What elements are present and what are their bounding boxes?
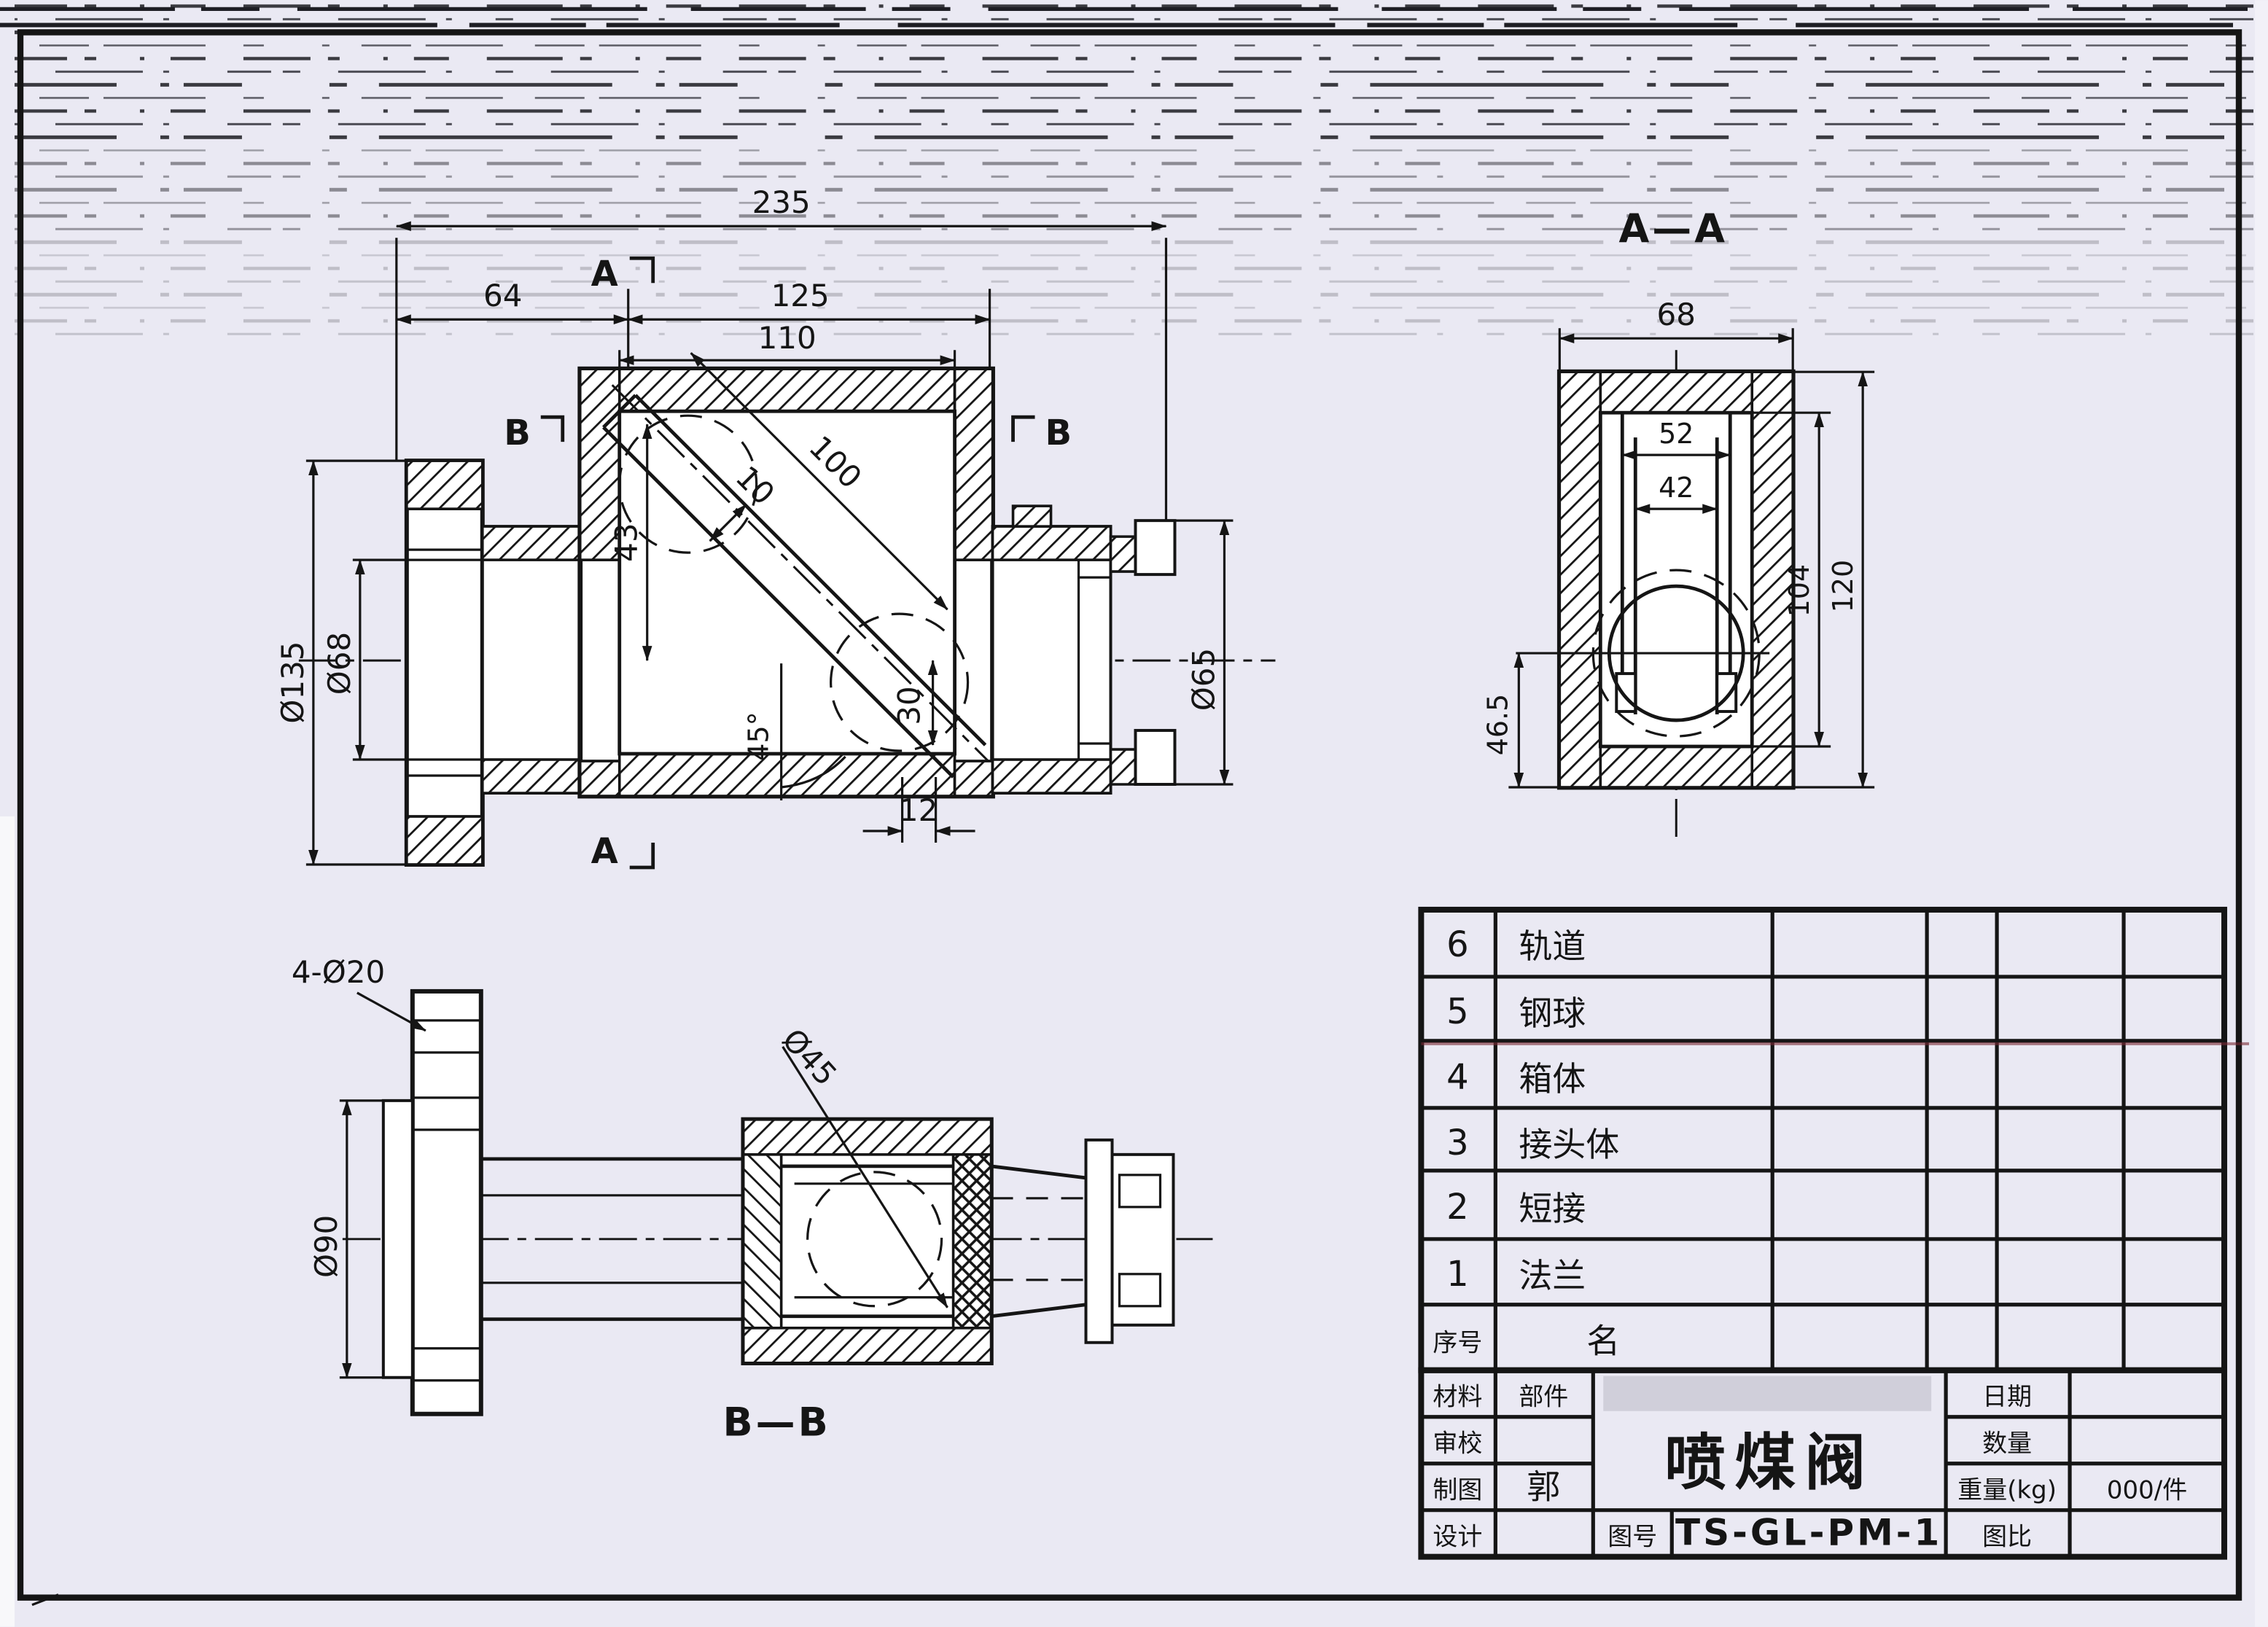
valve-box-front <box>580 369 993 796</box>
part-name: 法兰 <box>1519 1256 1586 1295</box>
dim-outlet-diameter: Ø65 <box>1185 648 1221 711</box>
dim-bore-diameter: Ø68 <box>322 632 357 695</box>
drawing-no-label: 图号 <box>1608 1523 1657 1552</box>
design-label: 设计 <box>1433 1523 1482 1552</box>
dim-track-angle: 45° <box>743 711 775 760</box>
dim-ring-diameter: Ø90 <box>308 1215 344 1278</box>
parts-header-name: 名 <box>1586 1322 1620 1361</box>
dim-slot-width: 12 <box>899 792 938 828</box>
weight-value: 000/件 <box>2107 1476 2187 1505</box>
dim-exit-offset: 30 <box>892 686 927 725</box>
dim-aa-inner-height: 104 <box>1783 564 1815 617</box>
dim-aa-outer-height: 120 <box>1827 560 1859 612</box>
part-no: 3 <box>1446 1123 1469 1163</box>
part-name: 接头体 <box>1519 1125 1619 1164</box>
part-no: 2 <box>1446 1187 1469 1228</box>
part-label: 部件 <box>1519 1383 1568 1412</box>
part-no: 4 <box>1446 1057 1469 1098</box>
dim-aa-width: 68 <box>1657 297 1696 332</box>
part-name: 短接 <box>1519 1189 1586 1228</box>
draft-label: 制图 <box>1433 1476 1482 1505</box>
dim-aa-rail-inner: 42 <box>1659 472 1694 504</box>
dim-flange-offset: 64 <box>483 278 522 313</box>
scale-label: 图比 <box>1982 1523 2032 1552</box>
blueprint-svg: 235 64 125 110 A A B B Ø135 <box>0 0 2268 1627</box>
part-name: 箱体 <box>1519 1059 1586 1099</box>
dim-overall-length: 235 <box>752 184 811 220</box>
qty-label: 数量 <box>1982 1429 2032 1459</box>
drawing-sheet: 235 64 125 110 A A B B Ø135 <box>0 0 2268 1627</box>
drawing-number: TS-GL-PM-1 <box>1675 1512 1942 1554</box>
dim-track-top-height: 43 <box>609 523 644 561</box>
section-b-marker-left: B <box>504 413 531 453</box>
section-a-marker-top: A <box>591 254 618 294</box>
dim-aa-ball-bottom: 46.5 <box>1481 694 1513 756</box>
section-a-marker-bottom: A <box>591 831 618 872</box>
product-title: 喷煤阀 <box>1664 1427 1874 1499</box>
check-label: 审校 <box>1433 1429 1482 1459</box>
dim-aa-rail-outer: 52 <box>1659 418 1694 450</box>
part-name: 钢球 <box>1519 994 1586 1033</box>
part-no: 1 <box>1446 1254 1469 1295</box>
joint-body-front <box>993 506 1111 793</box>
scan-edge-right <box>2255 0 2268 1626</box>
scan-smudge <box>1603 1376 1931 1411</box>
parts-header-no: 序号 <box>1433 1329 1482 1358</box>
part-no: 5 <box>1446 991 1469 1032</box>
part-no: 6 <box>1446 924 1469 965</box>
drafter-name: 郭 <box>1527 1467 1560 1507</box>
part-name: 轨道 <box>1519 926 1586 966</box>
section-b-marker-right: B <box>1045 413 1072 453</box>
dim-flange-diameter: Ø135 <box>275 641 311 723</box>
section-aa-title: A—A <box>1619 206 1729 251</box>
weight-label: 重量(kg) <box>1957 1476 2057 1505</box>
date-label: 日期 <box>1982 1383 2032 1412</box>
label-bolt-holes: 4-Ø20 <box>292 954 385 990</box>
section-bb-title: B—B <box>723 1400 831 1445</box>
dim-cavity-width: 110 <box>758 320 817 356</box>
material-label: 材料 <box>1433 1383 1482 1412</box>
scan-edge-left <box>0 816 15 1627</box>
dim-box-width: 125 <box>771 278 830 313</box>
bb-body <box>744 1120 991 1363</box>
scan-noise-artifacts <box>0 0 2268 344</box>
